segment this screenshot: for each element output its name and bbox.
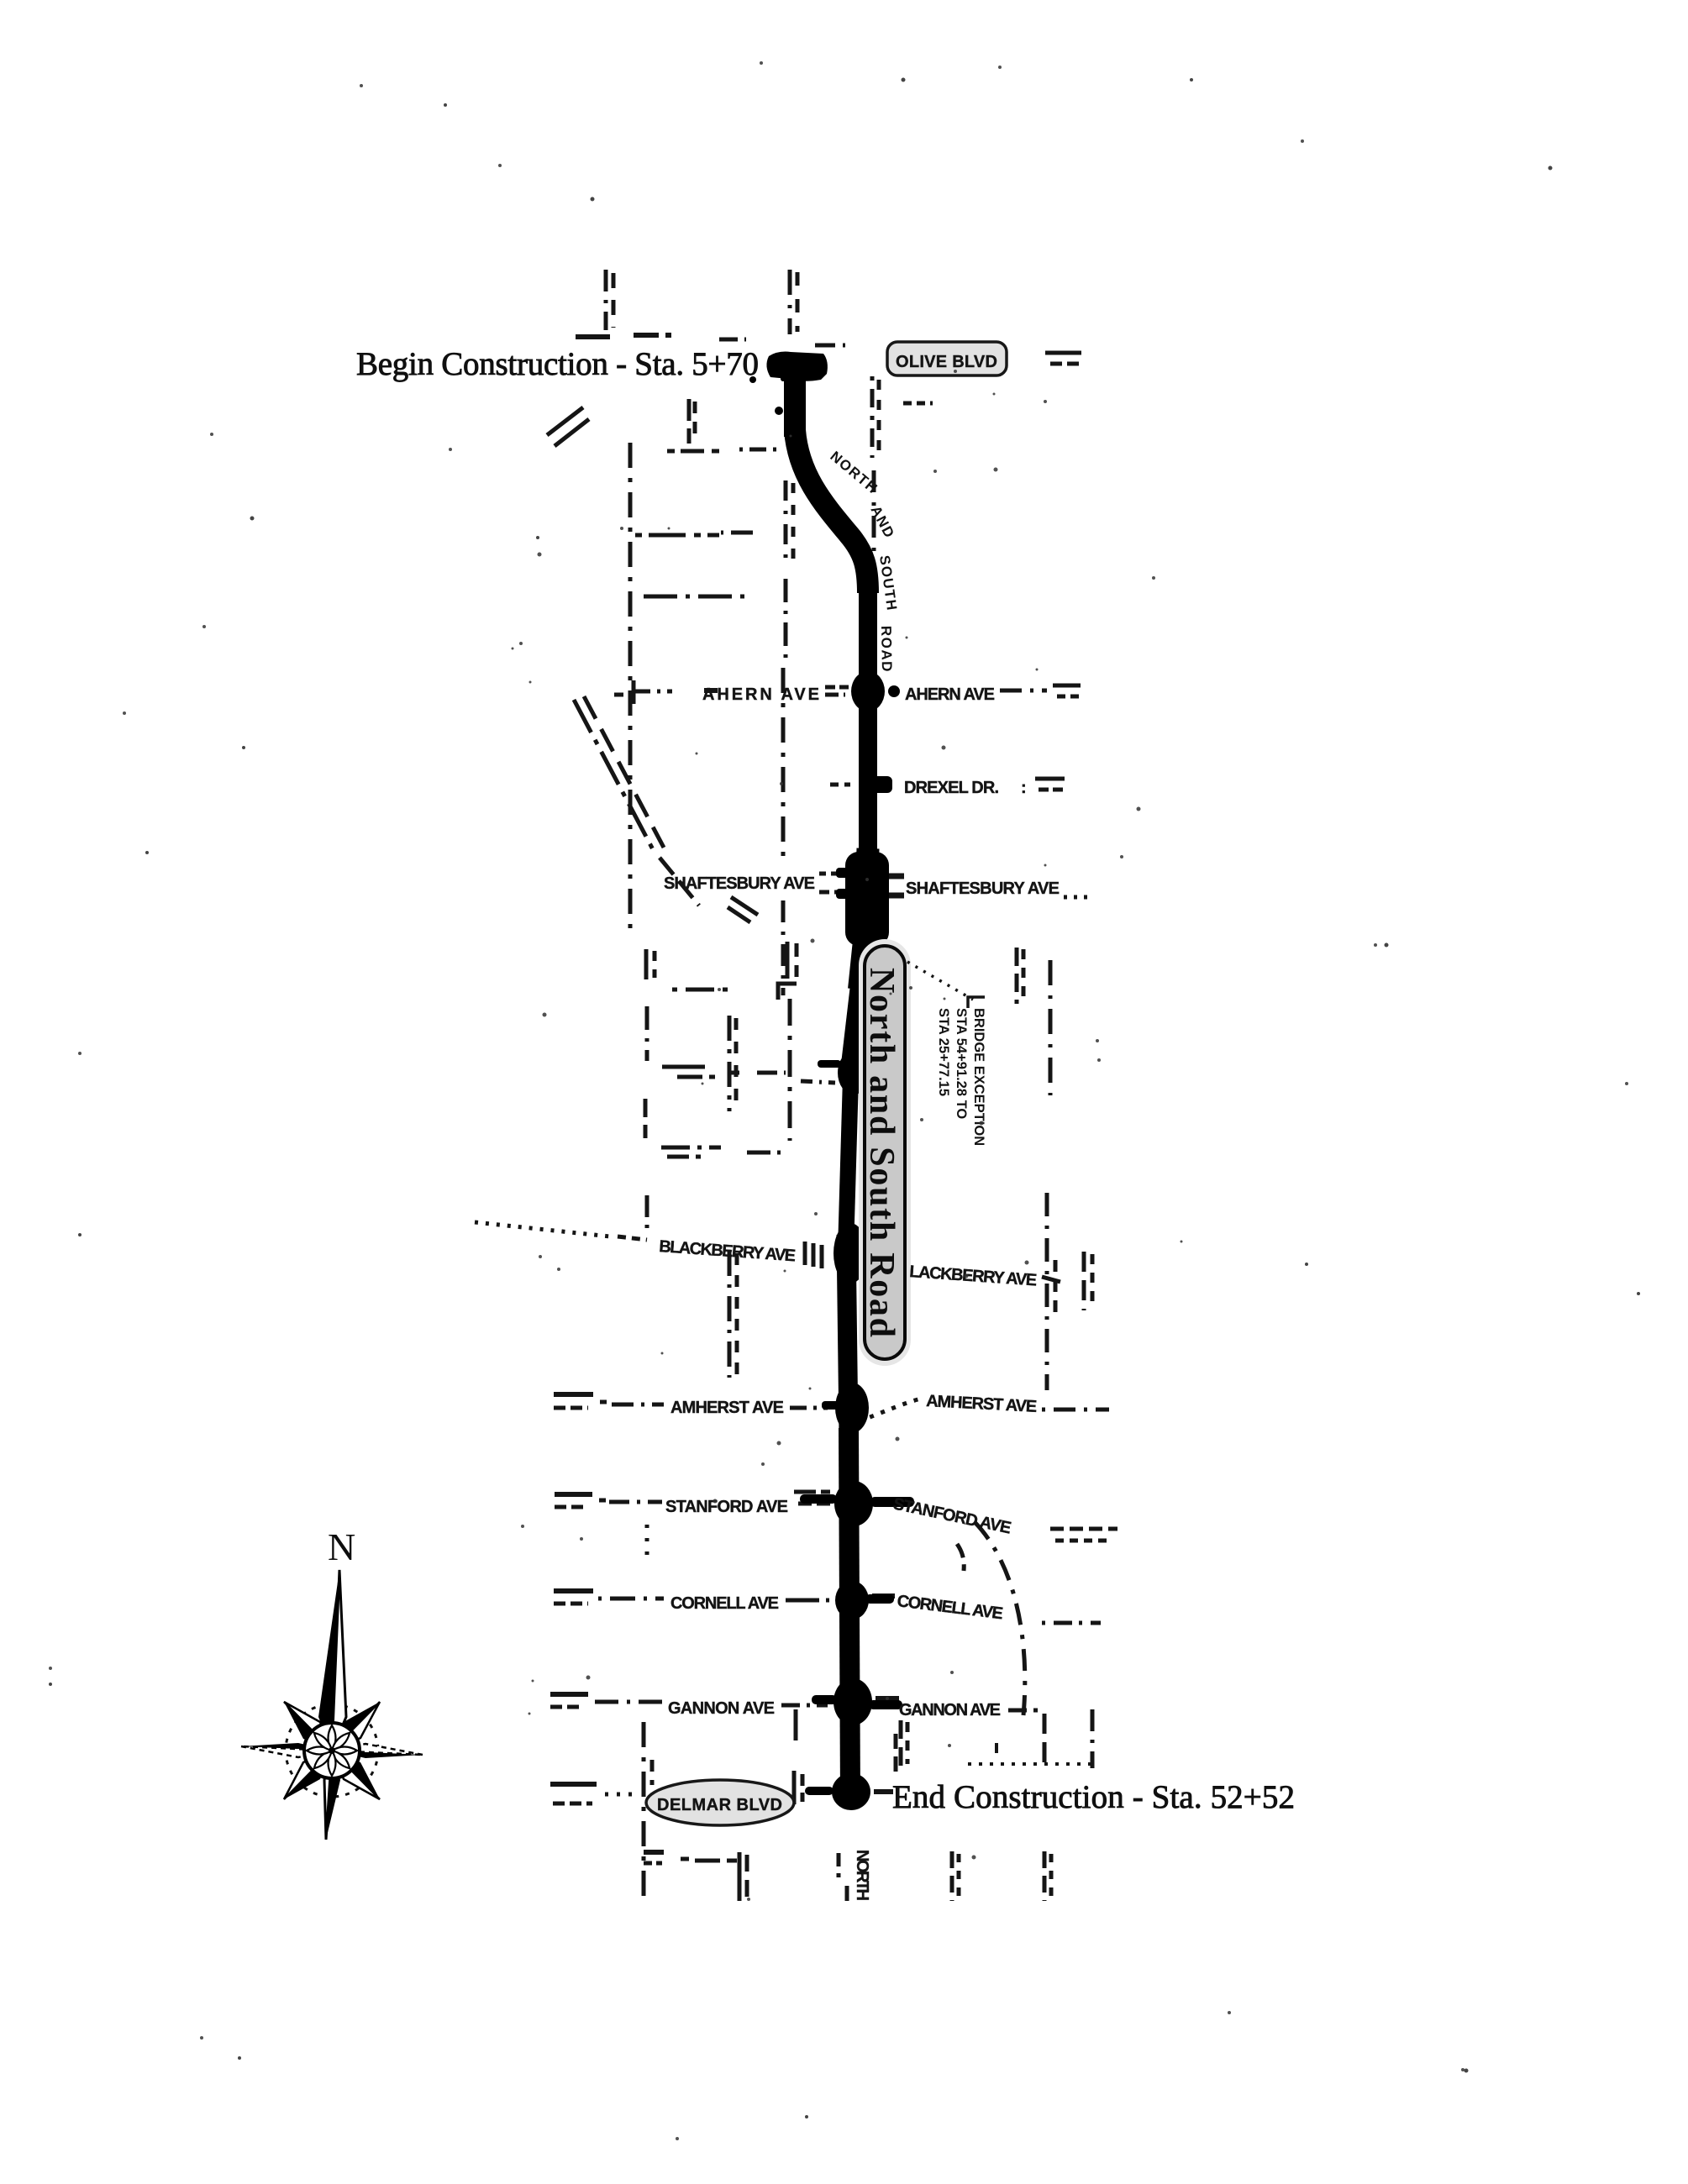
svg-text:ROAD: ROAD bbox=[878, 626, 895, 673]
svg-text:DELMAR BLVD: DELMAR BLVD bbox=[657, 1796, 783, 1814]
svg-text:GANNON AVE: GANNON AVE bbox=[899, 1701, 1002, 1719]
svg-text:N: N bbox=[328, 1525, 355, 1568]
svg-text:GANNON AVE: GANNON AVE bbox=[668, 1699, 776, 1718]
svg-text:End Construction - Sta. 52+52: End Construction - Sta. 52+52 bbox=[892, 1779, 1295, 1815]
svg-text::: : bbox=[1021, 779, 1028, 797]
svg-text:AMHERST AVE: AMHERST AVE bbox=[670, 1399, 785, 1417]
svg-text:DREXEL DR.: DREXEL DR. bbox=[904, 779, 1000, 797]
svg-text:North and South Road: North and South Road bbox=[862, 968, 901, 1337]
svg-text:SHAFTESBURY AVE: SHAFTESBURY AVE bbox=[906, 879, 1060, 898]
svg-text:AHERN AVE: AHERN AVE bbox=[905, 685, 996, 704]
svg-text:STA 25+77.15: STA 25+77.15 bbox=[936, 1008, 951, 1096]
svg-text:AHERN AVE: AHERN AVE bbox=[702, 685, 820, 704]
svg-text:OLIVE BLVD: OLIVE BLVD bbox=[896, 353, 998, 371]
svg-text:STANFORD AVE: STANFORD AVE bbox=[665, 1498, 789, 1516]
svg-text:Begin Construction - Sta. 5+70: Begin Construction - Sta. 5+70 bbox=[356, 346, 759, 382]
svg-text:STA 54+91.28 TO: STA 54+91.28 TO bbox=[954, 1008, 969, 1119]
svg-text:BRIDGE EXCEPTION: BRIDGE EXCEPTION bbox=[971, 1008, 986, 1146]
svg-text:SHAFTESBURY AVE: SHAFTESBURY AVE bbox=[664, 874, 816, 893]
svg-text:NORTH: NORTH bbox=[853, 1850, 871, 1902]
svg-text:CORNELL AVE: CORNELL AVE bbox=[670, 1594, 780, 1613]
